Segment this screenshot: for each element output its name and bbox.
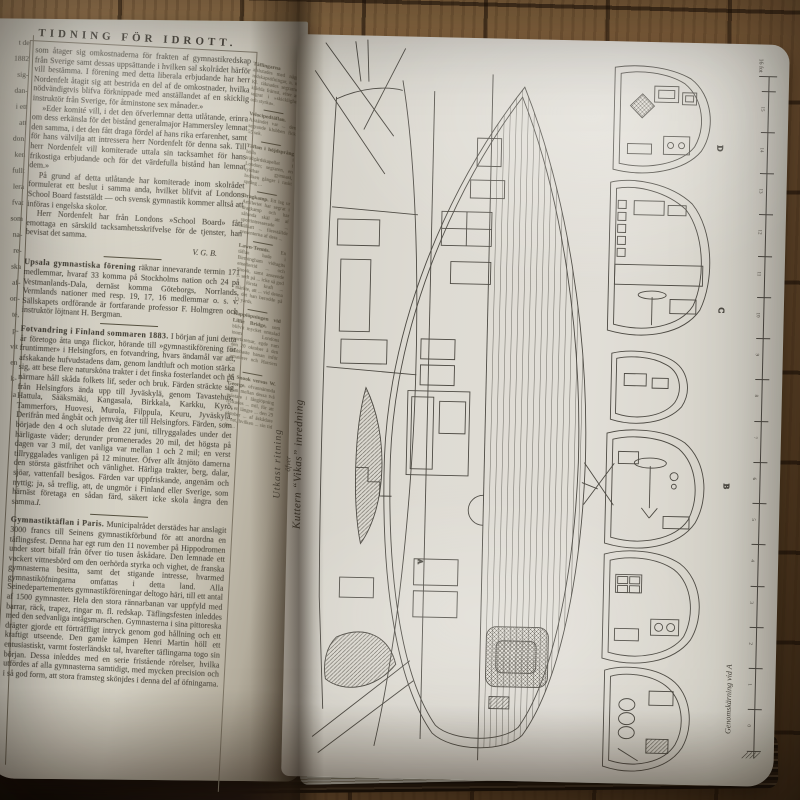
section-divider	[90, 514, 148, 518]
news-item-text: Ett lag ur Artilleriet har segrat i drag…	[240, 199, 291, 243]
cross-section-b	[604, 429, 705, 549]
svg-text:13: 13	[757, 188, 762, 194]
paragraph: Upsala gymnastiska förening räknar innev…	[21, 257, 240, 326]
cross-section-6	[602, 667, 690, 773]
paragraph: Fotvandring i Finland sommaren 1883. I b…	[11, 324, 236, 517]
svg-text:3: 3	[748, 601, 753, 604]
svg-text:15: 15	[759, 106, 764, 112]
left-page: t de 1882 sig- dan- i ett att don, ken f…	[0, 18, 308, 781]
signature: I.	[36, 498, 41, 507]
cross-section-5	[602, 550, 701, 664]
svg-text:6: 6	[751, 477, 756, 480]
section-letter-b: B	[722, 484, 731, 490]
scale-ruler: 16 fot 15 14 13 12 11 10 9 8 7 6 5 4 3 2…	[742, 58, 778, 758]
photo-of-open-book: t de 1882 sig- dan- i ett att don, ken f…	[0, 0, 800, 800]
paragraph: »Eder komité vill, i det den öfverlemnar…	[29, 103, 248, 181]
news-item-text: ofvannämnda täflan mellan dessa två mäst…	[224, 384, 275, 430]
section-divider	[104, 257, 162, 261]
news-item-text: som blifvit mycket omtalad inom Londons …	[229, 324, 280, 368]
svg-text:14: 14	[758, 147, 763, 153]
cross-section-caption: Genomskärning vid A	[723, 664, 734, 734]
news-item-text: afslutades med några redskapsöfningar, n…	[250, 68, 300, 107]
article-text: I början af juni detta år företogo åtta …	[11, 332, 236, 507]
svg-text:9: 9	[754, 353, 759, 356]
paragraph: Gymnastiktäflan i Paris. Municipalrådet …	[2, 515, 226, 689]
cross-section-d	[613, 65, 712, 174]
right-page: Utkast ritning öfver Kuttern “Vikas” inr…	[281, 34, 790, 787]
svg-text:1: 1	[746, 683, 751, 686]
svg-text:11: 11	[756, 271, 761, 276]
cross-section-small	[610, 351, 688, 425]
svg-text:8: 8	[753, 394, 758, 397]
scale-top-label: 16 fot	[757, 58, 764, 73]
cross-sections: D C	[575, 65, 740, 773]
svg-text:5: 5	[750, 518, 755, 521]
svg-text:0: 0	[745, 724, 750, 727]
svg-text:2: 2	[747, 642, 752, 645]
cross-section-c	[607, 180, 711, 337]
paragraph: som åtager sig omkostnaderna för frakten…	[33, 45, 252, 114]
section-divider	[100, 323, 158, 327]
station-x-mark	[581, 463, 614, 506]
section-letter-d: D	[715, 146, 724, 152]
yacht-inredning-drawing: A	[291, 36, 784, 785]
station-a-label: A	[416, 559, 424, 564]
section-letter-c: C	[717, 308, 726, 314]
svg-text:12: 12	[757, 229, 762, 235]
svg-text:7: 7	[752, 436, 757, 439]
article-text: räknar innevarande termin 171 medlemmar,…	[21, 263, 240, 319]
article-text: Municipalrådet derstädes har anslagit 30…	[2, 520, 226, 689]
svg-text:4: 4	[749, 559, 754, 562]
news-item-text: En täflan hade i Birmingham vidtagits em…	[234, 249, 286, 305]
svg-text:10: 10	[755, 312, 760, 318]
plan-view	[378, 72, 595, 762]
